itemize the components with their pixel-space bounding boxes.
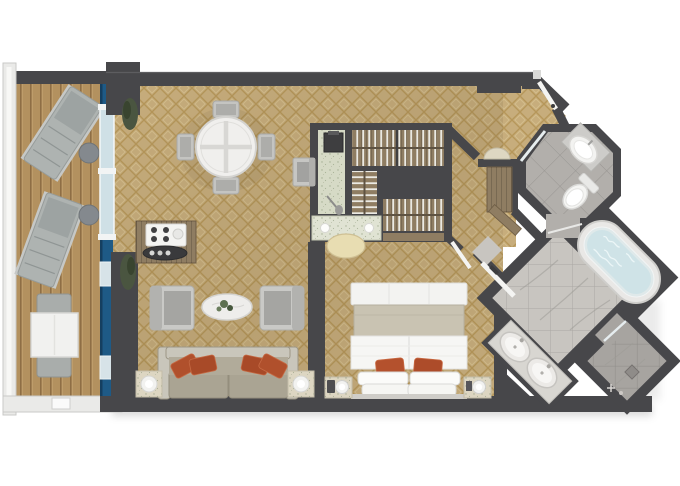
bed-pillow-white [410,372,460,385]
nightstand-right [464,377,491,398]
coffee-table [202,294,252,320]
sliding-glass-door-panel-1 [100,107,114,172]
wardrobe-bottom [383,199,444,231]
balcony-top-wall [3,71,112,84]
safe [324,133,343,152]
balcony-chair-2 [37,356,71,377]
walk-in-closet [310,123,452,258]
armchair-right [260,286,304,330]
door-frame-cap [98,168,116,174]
floor-plan-canvas [0,0,680,486]
wardrobe-top [352,130,444,166]
balcony-side-table-2 [79,205,99,225]
armchair-left [150,286,194,330]
telephone [327,380,335,393]
headboard [351,394,467,399]
round-dining-table [196,117,256,177]
floor-plan-drawing [0,0,680,486]
foot-bench [351,283,467,305]
dining-chair-bottom [213,177,239,194]
entry-door-handle [551,104,555,108]
door-frame-cap [98,234,116,240]
balcony-side-table-1 [79,143,99,163]
sliding-glass-door-panel-2 [100,172,114,238]
railing-inner [7,67,12,411]
bar-cabinet [136,221,196,263]
sofa [158,347,298,399]
bed-throw [354,305,464,336]
dining-chair-top [213,101,239,118]
balcony-chair-1 [37,294,71,315]
table-plant [220,300,228,308]
vanity-sconce-2 [365,224,374,233]
wardrobe-side [352,171,377,214]
railing-gate [52,398,70,409]
vanity-stool [327,234,365,258]
bed-pillow-white [358,372,408,385]
lamp-table-right [288,371,314,397]
closet-bench [383,233,444,241]
desk-chair [293,158,315,186]
lamp-table-left [136,371,162,397]
nightstand-left [325,377,352,398]
dining-chair-right [258,134,275,160]
vanity-sconce-1 [321,224,330,233]
dining-chair-left [177,134,194,160]
